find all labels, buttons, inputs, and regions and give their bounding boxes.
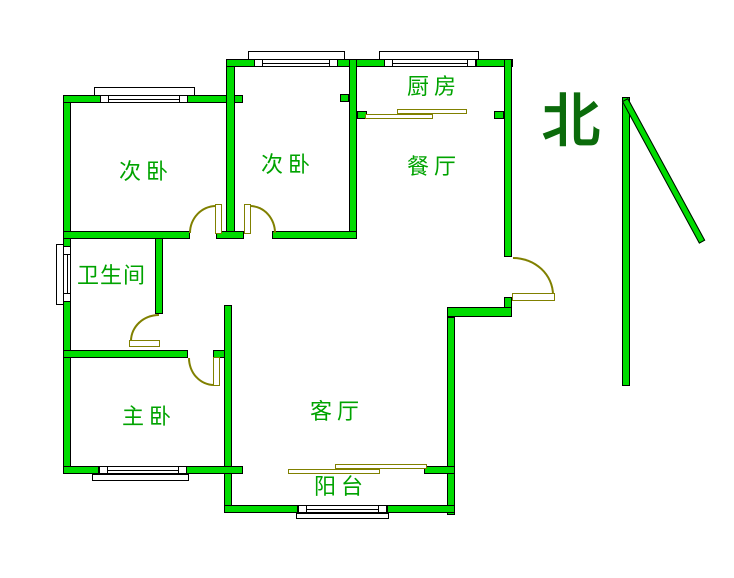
wall-living-east xyxy=(447,317,455,515)
wall-hall-south-b xyxy=(272,231,357,239)
window-cap xyxy=(178,466,187,474)
wall-east-exterior-upper xyxy=(504,59,512,257)
window-cap xyxy=(63,293,71,302)
door-arc-master xyxy=(188,358,214,386)
window-cap xyxy=(100,95,109,103)
room-label-master: 主卧 xyxy=(122,407,176,429)
wall-bathroom-east xyxy=(155,238,163,314)
wall-bedroom-divider xyxy=(226,59,235,238)
window-cap xyxy=(467,59,476,67)
door-leaf-master xyxy=(213,357,220,386)
north-label: 北 xyxy=(542,92,600,150)
door-leaf-bedroom-left xyxy=(215,204,222,234)
window-cap xyxy=(254,59,263,67)
wall-balcony-south-b xyxy=(387,505,455,513)
wall-top-a xyxy=(226,59,255,67)
floor-plan: 次卧 次卧 厨房 餐厅 卫生间 主卧 客厅 阳台 北 xyxy=(0,0,734,578)
sliding-door-balcony-bar xyxy=(288,469,380,474)
wall-hall-living-divider xyxy=(224,305,232,512)
room-label-balcony: 阳台 xyxy=(314,477,368,499)
window-cap xyxy=(298,505,307,513)
window-cap xyxy=(329,59,338,67)
window-band xyxy=(298,505,387,513)
wall-balcony-south-a xyxy=(224,505,298,513)
room-label-dining: 餐厅 xyxy=(407,157,461,179)
wall-bathroom-south xyxy=(63,350,188,358)
door-arc-entry xyxy=(513,257,554,295)
wall-hall-south-a xyxy=(63,231,190,239)
wall-bedroom-left-top-a xyxy=(63,95,101,103)
window-cap xyxy=(63,246,71,255)
sliding-door-kitchen-bar xyxy=(365,114,433,119)
wall-notch-kitchen-right xyxy=(494,111,504,119)
door-leaf-bathroom xyxy=(129,340,160,347)
wall-bedroom-right-east xyxy=(349,59,357,238)
north-arrow-diagonal xyxy=(622,98,705,244)
room-label-bathroom: 卫生间 xyxy=(77,266,146,288)
door-leaf-bedroom-right xyxy=(244,204,251,234)
wall-master-south-b xyxy=(185,466,243,474)
window-outer xyxy=(92,474,189,481)
door-arc-bathroom xyxy=(130,314,159,341)
window-band xyxy=(384,59,476,67)
window-cap xyxy=(99,466,108,474)
room-label-kitchen: 厨房 xyxy=(407,77,461,99)
door-leaf-entry xyxy=(512,293,555,301)
room-label-living: 客厅 xyxy=(310,402,364,424)
window-cap xyxy=(378,505,387,513)
window-band xyxy=(100,95,188,103)
wall-living-south xyxy=(424,466,455,474)
window-cap xyxy=(179,95,188,103)
window-band xyxy=(254,59,338,67)
room-label-bedroom-right: 次卧 xyxy=(261,155,315,177)
wall-top-b xyxy=(337,59,385,67)
wall-east-jog xyxy=(447,307,512,317)
window-cap xyxy=(384,59,393,67)
wall-notch-west xyxy=(340,94,349,102)
wall-master-south-a xyxy=(63,466,99,474)
room-label-bedroom-left: 次卧 xyxy=(119,162,173,184)
door-arc-bedroom-right xyxy=(250,205,276,233)
window-outer xyxy=(296,513,389,519)
north-arrow-shaft xyxy=(622,97,630,386)
door-arc-bedroom-left xyxy=(189,205,216,233)
window-band xyxy=(99,466,187,474)
